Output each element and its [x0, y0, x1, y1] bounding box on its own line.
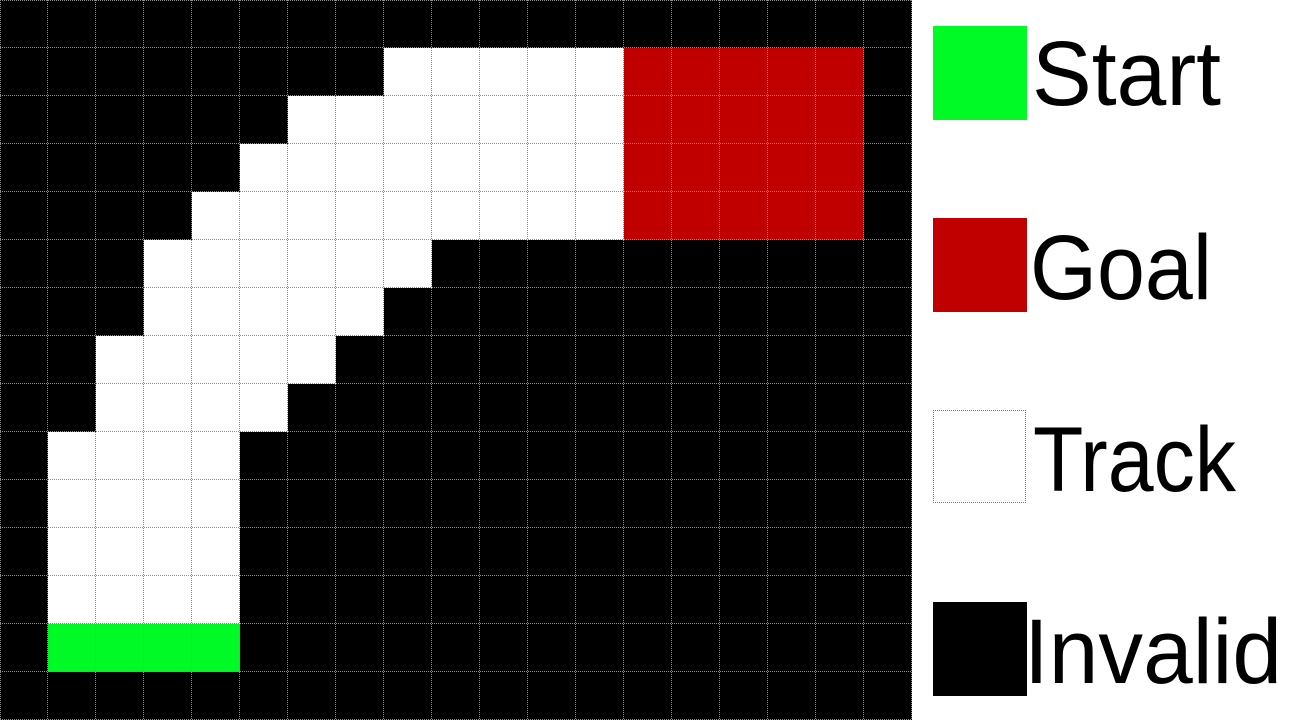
svg-text:Track: Track — [1033, 409, 1237, 511]
svg-text:Invalid: Invalid — [1024, 601, 1282, 703]
svg-text:Goal: Goal — [1030, 217, 1212, 319]
svg-text:Start: Start — [1032, 23, 1221, 125]
